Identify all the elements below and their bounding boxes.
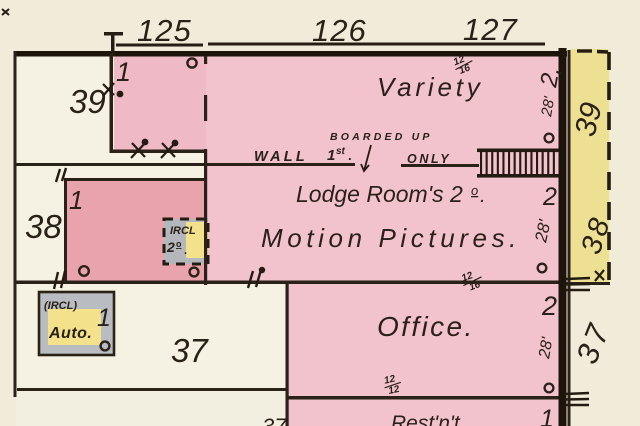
svg-text:37: 37 [171,332,209,369]
svg-text:.: . [348,148,352,163]
svg-text:Variety: Variety [377,72,484,102]
svg-text:125: 125 [137,13,192,48]
svg-text:IRCL: IRCL [170,225,196,237]
svg-text:.: . [480,185,486,207]
svg-text:2: 2 [542,183,557,211]
svg-text:2: 2 [166,239,175,255]
svg-text:(IRCL): (IRCL) [44,300,77,312]
svg-text:38: 38 [25,208,62,245]
svg-text:37: 37 [262,414,287,426]
svg-text:127: 127 [463,12,518,47]
svg-text:1: 1 [116,57,131,87]
svg-text:Auto.: Auto. [48,325,92,342]
svg-text:1: 1 [97,304,111,332]
svg-text:ONLY: ONLY [407,152,451,166]
svg-text:1: 1 [327,147,335,164]
svg-text:o: o [471,183,478,198]
svg-text:st: st [336,146,346,157]
svg-text:2: 2 [541,291,557,321]
svg-text:BOARDED UP: BOARDED UP [330,131,433,143]
svg-text:39: 39 [69,83,106,120]
svg-text:1: 1 [540,405,554,426]
svg-text:Office.: Office. [377,311,475,342]
svg-text:Motion Pictures.: Motion Pictures. [261,223,521,253]
svg-text:.: . [184,245,187,257]
svg-text:o: o [176,239,182,249]
svg-text:1: 1 [69,185,83,215]
svg-text:Lodge Room's 2: Lodge Room's 2 [296,181,463,207]
svg-text:WALL: WALL [254,149,308,165]
svg-text:Rest'n't: Rest'n't [391,412,461,426]
